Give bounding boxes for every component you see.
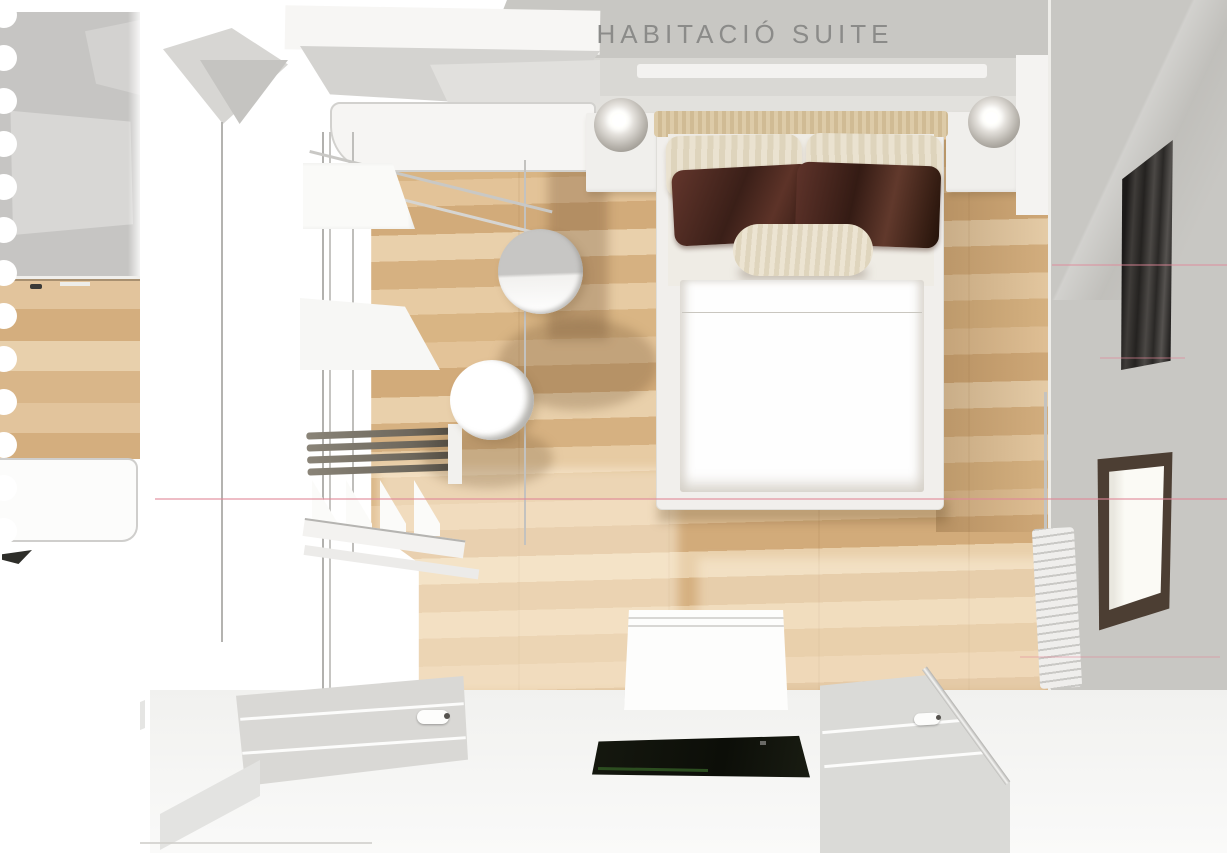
pink-scan-line [1052,264,1227,266]
sawtooth [414,480,440,536]
rail-bar [307,439,457,451]
strip-wood-top-line [0,279,140,281]
pink-scan-line [155,498,1227,500]
wardrobe-counter-band [330,102,596,172]
dark-rug [592,735,810,781]
scanned-render-page: HABITACIÓ SUITE [0,0,1227,853]
wardrobe-divider-edge [524,160,526,545]
radiator [1032,527,1082,689]
rail-bar [307,463,457,475]
rail-bar [307,451,457,463]
rug-dot [760,741,766,745]
strip-light-dash [60,282,90,286]
dark-window-panel [1120,140,1175,370]
pink-scan-line [1100,357,1185,359]
bolster-cushion [733,224,873,276]
wall-ledge-shelf [637,64,987,78]
door-seam [242,736,466,755]
closet-wall-edge-line [221,122,223,642]
door-handle-right-dot [936,715,941,720]
sawtooth [380,480,406,536]
pink-scan-line [1020,656,1220,658]
bench-top-seam [624,617,788,619]
bright-window-glass [1108,466,1164,610]
strip-white-bed-object [0,458,138,542]
notebook-strip [0,0,140,853]
round-stool-lower [450,360,534,440]
radiator-pipe [1044,392,1047,532]
top-cabinet-face-light [430,60,600,108]
bench-top-seam [624,625,788,627]
strip-wood-band [0,279,140,459]
rail-support [448,424,462,484]
strip-edge-light [128,12,140,278]
round-stool-upper [498,229,583,314]
hanging-rails [306,427,458,480]
duvet-fold-line [682,312,922,313]
strip-pillow-drape [8,100,133,235]
door-handle-left-dot [444,713,450,719]
page-title: HABITACIÓ SUITE [560,16,930,52]
wall-return-column [1016,55,1048,215]
globe-lamp-left-glow [612,114,626,127]
strip-dark-wedge [2,550,32,564]
strip-handle-mark [30,284,42,289]
foot-bench [624,610,788,710]
globe-lamp-right-glow [985,112,998,124]
